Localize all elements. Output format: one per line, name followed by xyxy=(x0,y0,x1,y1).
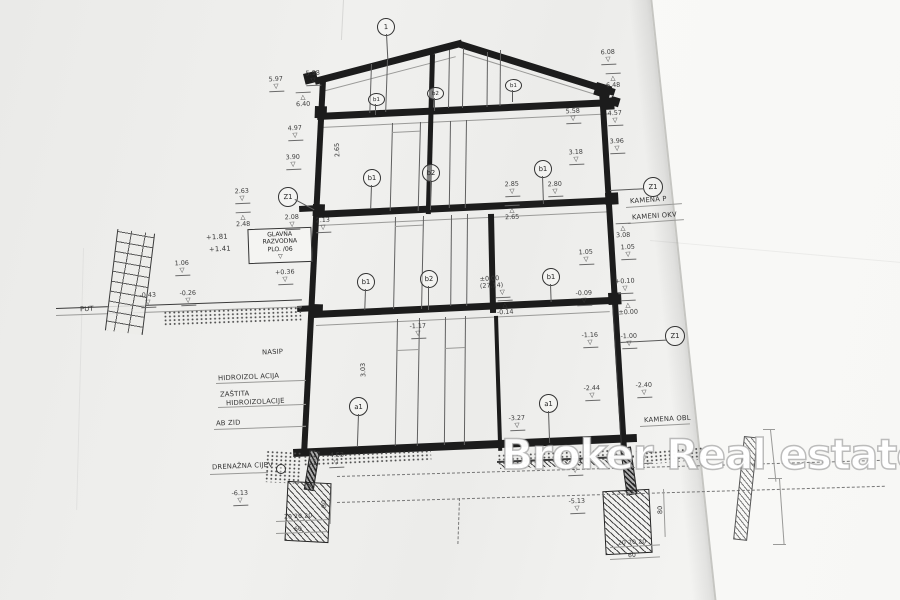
triangle-down-icon xyxy=(500,289,505,296)
elevation-marker: 5.58 xyxy=(558,107,589,124)
room-marker: b1 xyxy=(368,93,385,107)
room-label: b2 xyxy=(427,169,436,177)
triangle-down-icon xyxy=(625,251,630,258)
room-marker: b2 xyxy=(427,87,444,101)
road-base-gravel xyxy=(163,306,301,326)
door-head-line xyxy=(395,225,423,227)
z1-label: Z1 xyxy=(283,193,292,201)
triangle-down-icon xyxy=(320,224,325,231)
elevation-marker: 6.48 xyxy=(598,72,629,89)
elevation-marker: -0.14 xyxy=(490,299,521,316)
elevation-marker: 2.08 xyxy=(277,213,308,230)
excavation-dashed-vertical xyxy=(457,498,460,544)
triangle-down-icon xyxy=(641,389,646,396)
dim-line xyxy=(610,556,660,560)
triangle-down-icon xyxy=(552,188,557,195)
elevation-marker: 6.40 xyxy=(288,91,319,108)
label-put: PUT xyxy=(80,306,94,314)
elevation-value: 2.65 xyxy=(505,214,520,222)
triangle-down-icon xyxy=(514,422,519,429)
triangle-down-icon xyxy=(237,497,242,504)
attic-opening-frame xyxy=(385,60,388,112)
elevation-marker: -0.26 xyxy=(173,289,204,306)
elevation-value: 3.08 xyxy=(616,232,631,240)
elevation-marker: 3.18 xyxy=(561,148,592,165)
beam-block xyxy=(605,192,619,205)
dim-line-vertical xyxy=(663,489,666,537)
level3-door-frame xyxy=(418,122,421,211)
triangle-down-icon xyxy=(289,221,294,228)
door-head-line xyxy=(445,347,465,349)
attic-opening-frame xyxy=(448,50,450,108)
triangle-down-icon xyxy=(583,256,588,263)
elevation-marker: 4.97 xyxy=(280,124,311,141)
triangle-down-icon xyxy=(622,285,627,292)
room-label: b1 xyxy=(547,273,556,281)
leader-line xyxy=(512,90,513,102)
elevation-marker: ±0.00 xyxy=(613,299,644,316)
elevation-marker: +0.36 xyxy=(270,268,301,285)
leader-line xyxy=(370,185,372,209)
level3-door-frame xyxy=(390,123,393,211)
triangle-down-icon xyxy=(574,505,579,512)
triangle-down-icon xyxy=(333,459,338,466)
attic-opening-frame xyxy=(462,48,464,108)
elevation-marker: -4.53 xyxy=(321,451,352,468)
roof-slope-left xyxy=(314,40,463,85)
elevation-marker: 2.85 xyxy=(497,180,528,197)
triangle-down-icon xyxy=(273,83,278,90)
leader-line xyxy=(357,414,359,447)
level1-door-frame xyxy=(464,316,466,445)
elevation-marker: 1.05 xyxy=(613,243,644,260)
elevation-marker: ±0.00 (27.14) xyxy=(480,274,525,299)
room-marker: b2 xyxy=(420,270,439,289)
room-label: b1 xyxy=(510,82,517,88)
level2-window-frame xyxy=(466,214,468,306)
attic-opening-frame xyxy=(369,64,372,113)
triangle-down-icon xyxy=(605,56,610,63)
triangle-down-icon xyxy=(626,340,631,347)
elevation-value: -0.14 xyxy=(497,309,514,317)
elevation-marker: 5.97 xyxy=(261,75,292,92)
triangle-down-icon xyxy=(282,276,287,283)
elevation-marker: 2.13 xyxy=(308,216,339,233)
triangle-down-icon xyxy=(581,297,586,304)
triangle-down-icon xyxy=(612,117,617,124)
dim-footing-depth-left: 80 xyxy=(320,500,328,508)
triangle-down-icon xyxy=(290,161,295,168)
triangle-down-icon xyxy=(614,145,619,152)
triangle-down-icon xyxy=(310,77,315,84)
level2-window-frame xyxy=(450,215,452,306)
broker-watermark: Broker Real estate xyxy=(501,430,900,479)
leader-line xyxy=(428,286,429,310)
triangle-down-icon xyxy=(570,115,575,122)
elevation-marker: 1.05 xyxy=(571,248,602,265)
triangle-down-icon xyxy=(185,297,190,304)
level3-window-frame xyxy=(449,121,451,208)
elevation-marker: 2.48 xyxy=(228,211,259,228)
elevation-marker: 2.80 xyxy=(540,180,571,197)
main-distribution-panel-box: GLAVNA RAZVODNA PLO. /06 xyxy=(247,227,312,264)
level1-door-frame xyxy=(395,319,398,446)
paper-left-edge xyxy=(76,248,84,510)
stone-retaining-wall xyxy=(105,229,155,335)
room-label: b1 xyxy=(368,174,377,182)
roof-underline-right xyxy=(464,53,606,98)
level2-door-frame xyxy=(421,216,424,309)
level1-door-frame xyxy=(444,317,446,445)
room-label: b2 xyxy=(432,90,439,96)
triangle-down-icon xyxy=(292,132,297,139)
room-marker: b1 xyxy=(505,79,522,93)
dim-attic-height: 2.65 xyxy=(333,143,341,158)
elevation-marker: 5.98 xyxy=(298,69,329,86)
leader-line xyxy=(550,284,552,302)
detail-marker-z1-left: Z1 xyxy=(278,187,299,208)
triangle-down-icon xyxy=(239,195,244,202)
attic-opening-frame xyxy=(487,52,488,107)
level3-window-frame xyxy=(465,120,467,208)
elevation-value: ±0.00 xyxy=(618,309,638,317)
elevation-marker: -2.40 xyxy=(629,381,660,398)
elevation-marker: -0.43 xyxy=(133,291,164,308)
level2-door-frame xyxy=(393,217,396,309)
triangle-down-icon xyxy=(145,299,150,306)
beam-block xyxy=(315,106,327,118)
triangle-down-icon xyxy=(589,392,594,399)
triangle-down-icon xyxy=(573,156,578,163)
scanned-blueprint-sheet: 1 Z1 Z1 Z1 b1 b2 b1 b1 b2 b1 b1 b2 b1 a1… xyxy=(0,0,900,600)
elevation-marker: 3.96 xyxy=(602,137,633,154)
elevation-marker: 2.63 xyxy=(227,187,258,204)
attic-opening-frame xyxy=(500,50,501,106)
elevation-marker: 3.90 xyxy=(278,153,309,170)
elevation-marker: -5.13 xyxy=(562,497,593,514)
door-head-line xyxy=(397,349,419,351)
roof-detail-label: 1 xyxy=(384,23,389,31)
door-head-line xyxy=(392,131,420,133)
dim-level1-height: 3.03 xyxy=(359,363,367,378)
leader-line xyxy=(375,104,376,115)
label-level-141: +1.41 xyxy=(209,246,231,254)
label-underline xyxy=(210,472,268,475)
panel-triangle-icon xyxy=(252,252,308,261)
elevation-marker: 2.65 xyxy=(497,204,528,221)
elevation-marker: 1.06 xyxy=(167,259,198,276)
room-label: b2 xyxy=(425,275,434,283)
label-ab-zid: AB ZID xyxy=(216,419,241,427)
triangle-down-icon xyxy=(587,339,592,346)
label-level-181: +1.81 xyxy=(206,234,228,242)
triangle-down-icon xyxy=(415,330,420,337)
room-label: b1 xyxy=(539,165,548,173)
room-marker: b2 xyxy=(422,164,441,183)
elevation-value: 2.48 xyxy=(236,221,251,229)
elevation-marker: -2.44 xyxy=(577,384,608,401)
leader-line xyxy=(386,34,388,60)
elevation-marker: 4.57 xyxy=(600,109,631,126)
elevation-marker: +0.10 xyxy=(610,277,641,294)
leader-line xyxy=(610,188,644,191)
elevation-marker: -1.00 xyxy=(614,332,645,349)
label-zastita: ZAŠTITA xyxy=(220,390,250,398)
elevation-value: 6.40 xyxy=(296,101,311,109)
elevation-marker: -1.17 xyxy=(403,322,434,339)
room-label: b1 xyxy=(373,96,380,102)
detail-outline xyxy=(773,544,786,545)
elevation-marker: -1.16 xyxy=(575,331,606,348)
elevation-marker: 3.08 xyxy=(608,222,639,239)
triangle-down-icon xyxy=(509,188,514,195)
dim-line-vertical xyxy=(330,486,332,524)
elevation-marker: -6.13 xyxy=(225,489,256,506)
z1-label: Z1 xyxy=(670,332,679,340)
triangle-down-icon xyxy=(179,267,184,274)
room-label: b1 xyxy=(362,278,371,286)
elevation-value: 6.48 xyxy=(606,82,621,90)
elevation-marker: 6.08 xyxy=(593,48,624,65)
room-label: a1 xyxy=(544,399,553,407)
label-nasip: NASIP xyxy=(262,349,283,357)
z1-label: Z1 xyxy=(648,183,657,191)
elevation-marker: -0.09 xyxy=(569,289,600,306)
leader-line xyxy=(430,180,431,210)
leader-line xyxy=(434,98,435,111)
paper-top-fold xyxy=(341,0,344,40)
room-label: a1 xyxy=(354,402,363,410)
leader-line xyxy=(364,289,366,310)
